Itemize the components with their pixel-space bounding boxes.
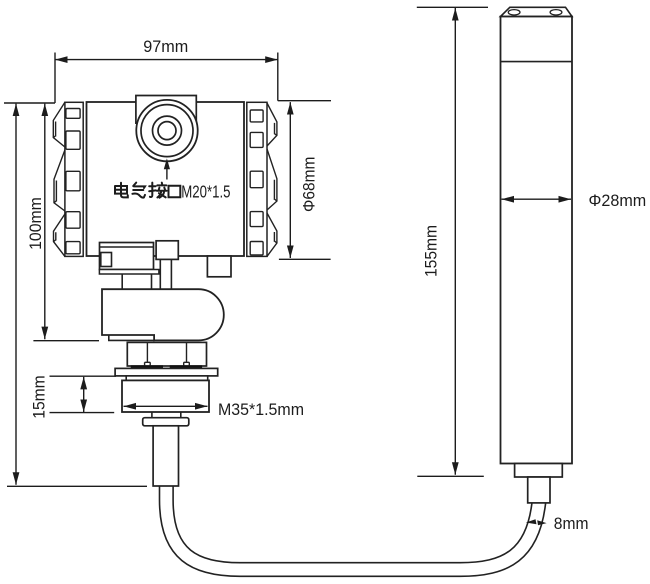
svg-text:100mm: 100mm — [26, 197, 45, 250]
svg-text:M35*1.5mm: M35*1.5mm — [218, 400, 304, 419]
svg-text:97mm: 97mm — [143, 37, 188, 56]
svg-text:8mm: 8mm — [554, 514, 589, 533]
svg-text:155mm: 155mm — [422, 225, 441, 277]
svg-text:Φ28mm: Φ28mm — [589, 191, 647, 210]
svg-text:15mm: 15mm — [30, 375, 49, 418]
svg-text:M20*1.5: M20*1.5 — [181, 182, 230, 202]
svg-text:Φ68mm: Φ68mm — [300, 157, 319, 212]
